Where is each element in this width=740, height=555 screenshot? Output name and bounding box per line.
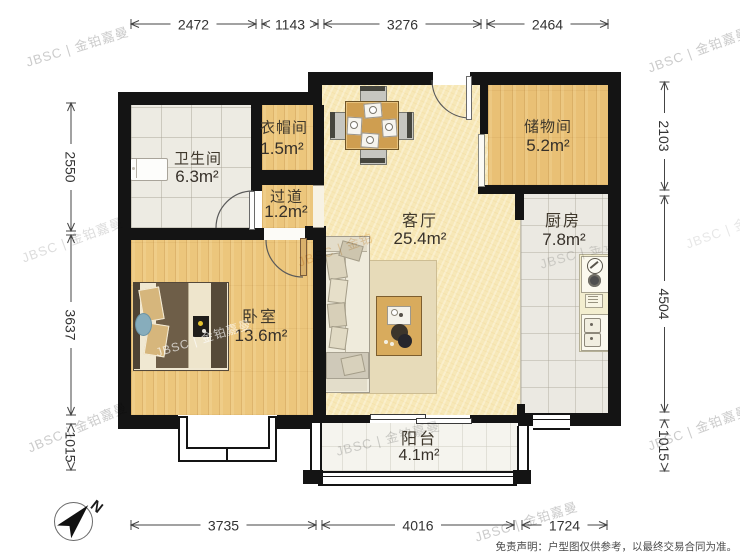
svg-text:N: N	[87, 497, 106, 517]
